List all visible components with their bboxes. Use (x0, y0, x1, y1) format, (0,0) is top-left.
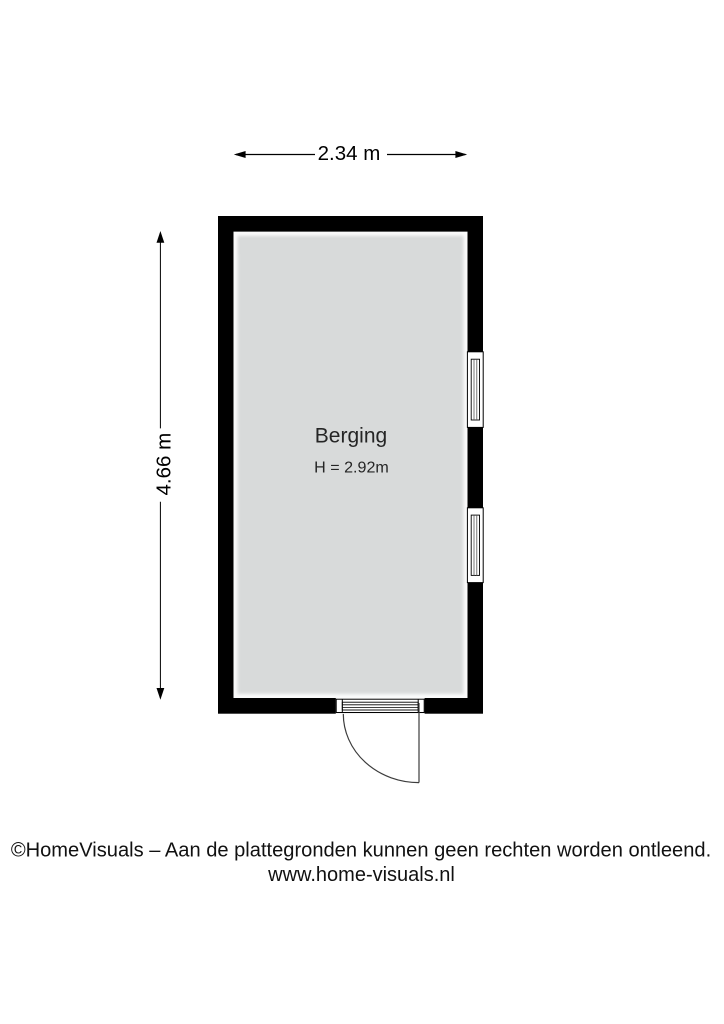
svg-text:H = 2.92m: H = 2.92m (314, 459, 389, 477)
svg-text:2.34 m: 2.34 m (318, 142, 381, 165)
svg-text:www.home-visuals.nl: www.home-visuals.nl (267, 864, 455, 886)
svg-text:Berging: Berging (315, 425, 387, 448)
svg-text:©HomeVisuals – Aan de plattegr: ©HomeVisuals – Aan de plattegronden kunn… (11, 840, 711, 862)
svg-text:4.66 m: 4.66 m (152, 433, 175, 496)
